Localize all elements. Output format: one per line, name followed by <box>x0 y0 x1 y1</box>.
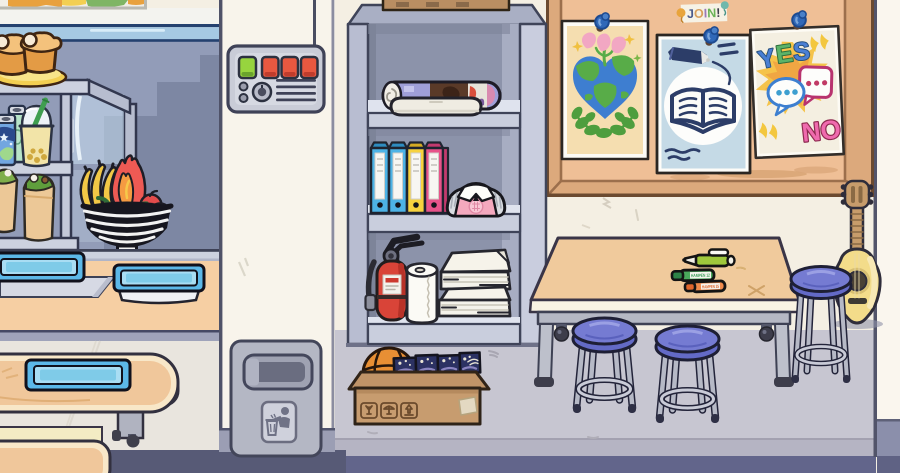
svg-text:NO: NO <box>800 114 842 148</box>
svg-text:HAMPEN 25: HAMPEN 25 <box>702 284 720 290</box>
svg-text:S: S <box>792 37 811 66</box>
svg-text:HAMPEN 12: HAMPEN 12 <box>691 273 710 278</box>
svg-text:JOIN!: JOIN! <box>687 6 721 21</box>
